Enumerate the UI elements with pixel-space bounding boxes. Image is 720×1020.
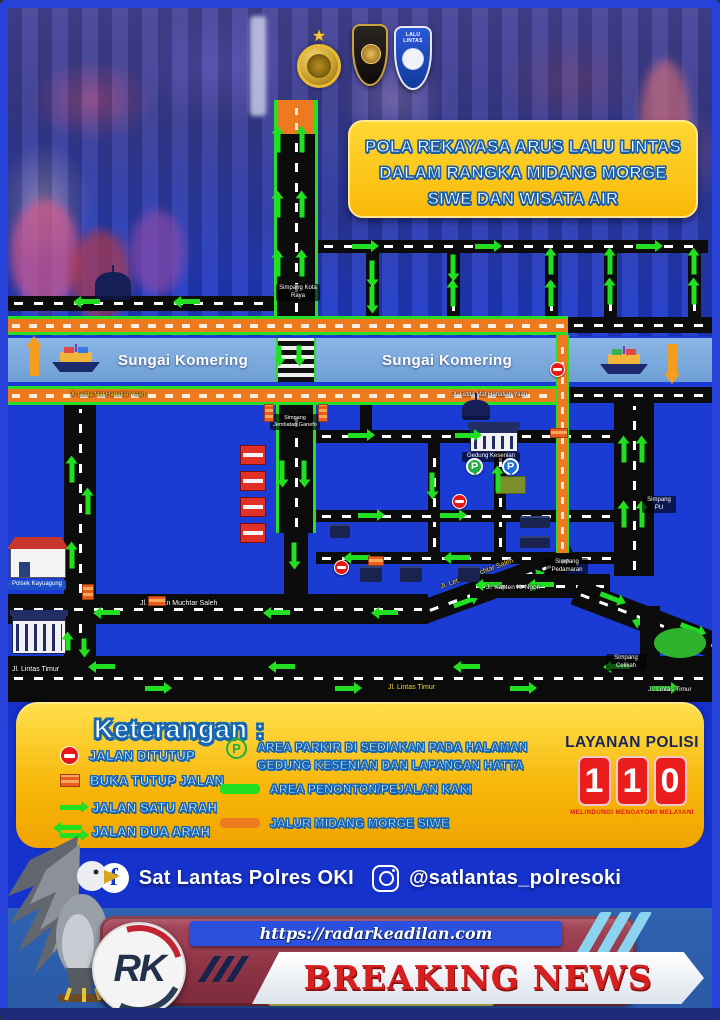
- boat-icon: [596, 346, 652, 376]
- parking-icon: P: [226, 738, 247, 759]
- junction-simpang-kota: Simpang Kota Raya: [276, 284, 320, 301]
- police-tagline: MELINDUNGI MENGAYOMI MELAYANI: [556, 809, 708, 816]
- building-icon: [520, 516, 550, 528]
- open-close-barrier: [264, 404, 274, 422]
- junction-simpang-pedamaran: Simpang Pedamaran: [546, 558, 588, 575]
- parking-pin-green: P: [466, 458, 483, 475]
- open-close-barrier: [82, 584, 94, 600]
- title-banner: POLA REKAYASA ARUS LALU LINTAS DALAM RAN…: [348, 120, 698, 218]
- title-line-1: POLA REKAYASA ARUS LALU LINTAS: [350, 134, 696, 160]
- building-icon: [240, 497, 266, 517]
- boat-direction-up-arrow: [30, 346, 39, 376]
- polsek-building: [10, 548, 66, 578]
- frame-top: [0, 0, 720, 8]
- river-label-west: Sungai Komering: [118, 352, 248, 369]
- road-north-bank-east: [568, 317, 712, 333]
- legend-item-penonton: AREA PENONTON/PEJALAN KAKI: [220, 782, 472, 796]
- building-icon: [520, 536, 550, 548]
- instagram-handle[interactable]: @satlantas_polresoki: [409, 867, 621, 890]
- frame-left: [0, 0, 8, 1020]
- one-way-arrow-icon: [60, 805, 82, 810]
- open-close-barrier: [550, 428, 568, 438]
- legend-item-jalur-midang: JALUR MIDANG MORGE SIWE: [220, 816, 449, 830]
- badge-label: LALU LINTAS: [396, 32, 430, 44]
- title-line-3: SIWE DAN WISATA AIR: [350, 186, 696, 212]
- banner-flag: [250, 16, 266, 116]
- police-service-title: LAYANAN POLISI: [556, 734, 708, 752]
- building-icon: [330, 524, 350, 538]
- rk-logo: RK: [92, 922, 186, 1016]
- title-line-2: DALAM RANGKA MIDANG MORGE: [350, 160, 696, 186]
- spectator-area-icon: [220, 784, 260, 794]
- crowd-figure: [130, 210, 185, 295]
- breaking-news-banner: BREAKING NEWS: [252, 952, 704, 1004]
- junction-simpang-pu: Simpang PU: [642, 496, 676, 513]
- road-label-hanafiah-west: Jl. Letda Mat Hanafiah Yaan: [70, 392, 145, 398]
- digit: 1: [616, 756, 649, 806]
- traffic-poster: ★ LALU LINTAS POLA REKAYASA ARUS LALU LI…: [0, 0, 720, 1020]
- digit: 1: [578, 756, 611, 806]
- breaking-news-text: BREAKING NEWS: [252, 952, 704, 1004]
- instagram-icon: [372, 865, 399, 892]
- road-lintas-dash: [14, 677, 706, 680]
- polsek-label: Polsek Kayuagung: [8, 580, 66, 590]
- boat-icon: [48, 344, 104, 374]
- legend-label: JALAN DITUTUP: [89, 748, 195, 763]
- facebook-handle[interactable]: Sat Lantas Polres OKI: [139, 867, 354, 890]
- route-midang-north-bank: [8, 316, 568, 335]
- road-muchtar-saleh: [8, 594, 428, 624]
- mosque-icon: [95, 272, 131, 300]
- road-closed-sign: [452, 494, 467, 509]
- junction-simpang-jembatan: Simpang Jembatan Ganefo: [270, 414, 320, 430]
- river-label-east: Sungai Komering: [382, 352, 512, 369]
- road-closed-sign: [550, 362, 565, 377]
- badge-inner: [402, 48, 424, 70]
- junction-simpang-celikah: Simpang Celikah: [606, 654, 646, 671]
- green-field-oval: [654, 628, 706, 658]
- legend-item-buka-tutup: BUKA TUTUP JALAN: [60, 773, 224, 788]
- police-service-box: LAYANAN POLISI 1 1 0 MELINDUNGI MENGAYOM…: [556, 734, 708, 816]
- road-closed-sign: [334, 560, 349, 575]
- building-icon: [400, 566, 422, 582]
- legend-item-parkir: P AREA PARKIR DI SEDIAKAN PADA HALAMAN G…: [226, 738, 559, 774]
- digit: 0: [654, 756, 687, 806]
- building-icon: [240, 523, 266, 543]
- open-close-road-icon: [60, 774, 80, 787]
- open-close-barrier: [318, 404, 328, 422]
- road-center-stub: [360, 403, 372, 430]
- building-icon: [240, 471, 266, 491]
- road-top-left: [8, 296, 274, 311]
- legend-label: AREA PARKIR DI SEDIAKAN PADA HALAMAN GED…: [257, 738, 559, 774]
- no-entry-icon: [60, 746, 79, 765]
- road-east-vertical: [614, 400, 654, 576]
- legend-item-jalan-ditutup: JALAN DITUTUP: [60, 746, 195, 765]
- legend-label: JALAN SATU ARAH: [92, 800, 217, 815]
- boat-direction-down-arrow: [668, 344, 677, 374]
- frame-right: [712, 0, 720, 1020]
- website-url[interactable]: https://radarkeadilan.com: [260, 924, 493, 943]
- crowd-figure: [10, 200, 80, 310]
- polri-ring: [297, 44, 341, 88]
- building-icon: [240, 445, 266, 465]
- star-icon: ★: [312, 26, 326, 46]
- road-label-lintas-mid: Jl. Lintas Timur: [388, 684, 435, 691]
- website-bar: https://radarkeadilan.com: [190, 921, 562, 946]
- polri-emblem-logo: ★: [288, 30, 350, 90]
- road-label-hanafiah-east: Jl. Letda Mat Hanafiah Yaan: [452, 392, 527, 398]
- parking-pin-blue: P: [502, 458, 519, 475]
- midang-route-icon: [220, 818, 260, 828]
- legend-label: BUKA TUTUP JALAN: [90, 773, 224, 788]
- road-label-kapten: Jl. Kapten K. Ngoh: [486, 584, 540, 591]
- police-110-number: 1 1 0: [556, 756, 708, 806]
- legend-item-satu-arah: JALAN SATU ARAH: [60, 800, 217, 815]
- open-close-barrier: [368, 556, 384, 566]
- legend-label: JALUR MIDANG MORGE SIWE: [270, 816, 449, 830]
- open-close-barrier: [148, 596, 166, 606]
- building-icon: [360, 566, 382, 582]
- mosque-icon: [462, 400, 490, 420]
- road-label-lintas-west: Jl. Lintas Timur: [12, 666, 59, 673]
- road-label-lintas-east: Jl. Lintas Timur: [648, 686, 692, 693]
- legend-label: AREA PENONTON/PEJALAN KAKI: [270, 782, 472, 796]
- frame-bottom: [0, 1008, 720, 1020]
- government-building: [12, 616, 66, 654]
- rk-logo-text: RK: [94, 948, 184, 991]
